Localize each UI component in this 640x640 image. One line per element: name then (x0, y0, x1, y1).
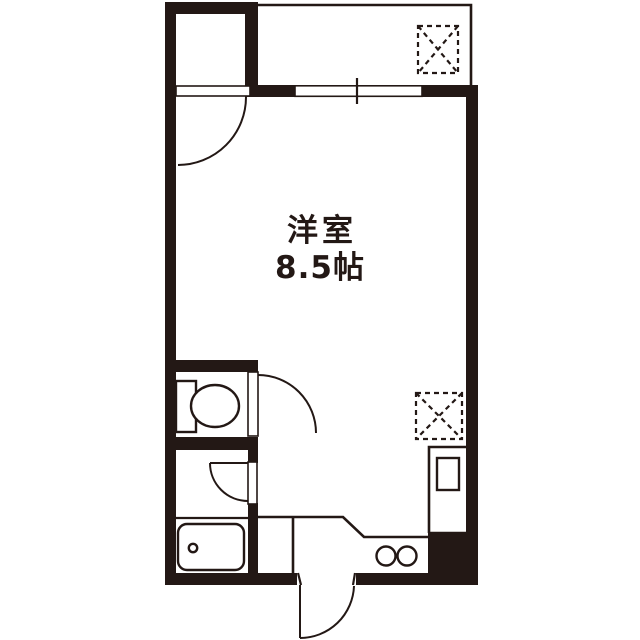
toilet-bathroom-divider-wall (165, 437, 258, 450)
bathtub-drain (189, 544, 197, 552)
toilet-bowl (191, 385, 239, 427)
bathroom-right-wall-lower (248, 503, 258, 575)
floor-plan-page: 洋室 8.5帖 (0, 0, 640, 640)
window-wall-right-segment (421, 85, 467, 97)
refrigerator-space-icon (416, 393, 462, 439)
bathroom-right-wall-upper (248, 450, 258, 463)
right-wall (466, 85, 478, 585)
room-name-label: 洋室 (287, 213, 357, 249)
ac-unit-space-cross (418, 26, 458, 73)
bottom-wall-left (165, 573, 297, 585)
toilet-room (176, 372, 316, 436)
entrance-door-swing-arc (300, 585, 354, 638)
left-wall (165, 2, 176, 585)
refrigerator-space-cross (416, 393, 462, 439)
stove-burner-left (377, 547, 396, 566)
entrance-threshold (297, 573, 356, 585)
toilet-top-wall (165, 360, 258, 372)
toilet-door-swing-arc (258, 375, 316, 433)
bathroom-door-swing-arc (210, 463, 248, 501)
closet-door-sill (176, 86, 250, 96)
balcony-outline (250, 5, 471, 86)
kitchen-corner-block (428, 532, 478, 585)
bathroom-door-sill (248, 462, 257, 504)
room-size-label: 8.5帖 (275, 250, 365, 286)
toilet-door-panel (248, 372, 258, 436)
ac-unit-space-icon (418, 26, 458, 73)
top-wall-closet (165, 2, 257, 14)
bathroom (176, 462, 257, 570)
floor-plan-drawing: 洋室 8.5帖 (0, 0, 640, 640)
genkan-kitchen-counter-edge (257, 517, 429, 537)
window-wall-left-segment (250, 85, 296, 97)
closet-right-wall (245, 2, 258, 97)
closet-door-swing-arc (178, 97, 246, 165)
kitchen-sink (437, 458, 459, 490)
closet-door (176, 86, 250, 165)
stove-burner-right (398, 547, 417, 566)
window-glass-lines (295, 86, 422, 97)
entrance-door (297, 573, 356, 638)
window-symbol (295, 78, 422, 104)
